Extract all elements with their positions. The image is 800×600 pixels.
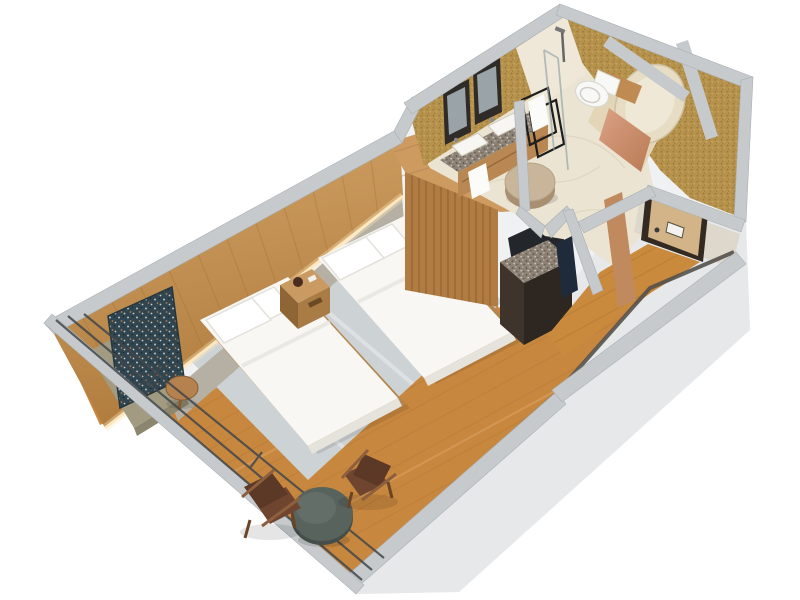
floorplan-svg bbox=[0, 0, 800, 600]
vanity-stool bbox=[505, 163, 555, 201]
side-table bbox=[166, 376, 198, 400]
floorplan-render bbox=[0, 0, 800, 600]
faucet-right bbox=[490, 118, 494, 122]
door-handle bbox=[655, 228, 660, 233]
faucet-left bbox=[454, 138, 458, 142]
nightstand-clock bbox=[293, 277, 303, 287]
coffee-table-highlight bbox=[296, 492, 336, 524]
